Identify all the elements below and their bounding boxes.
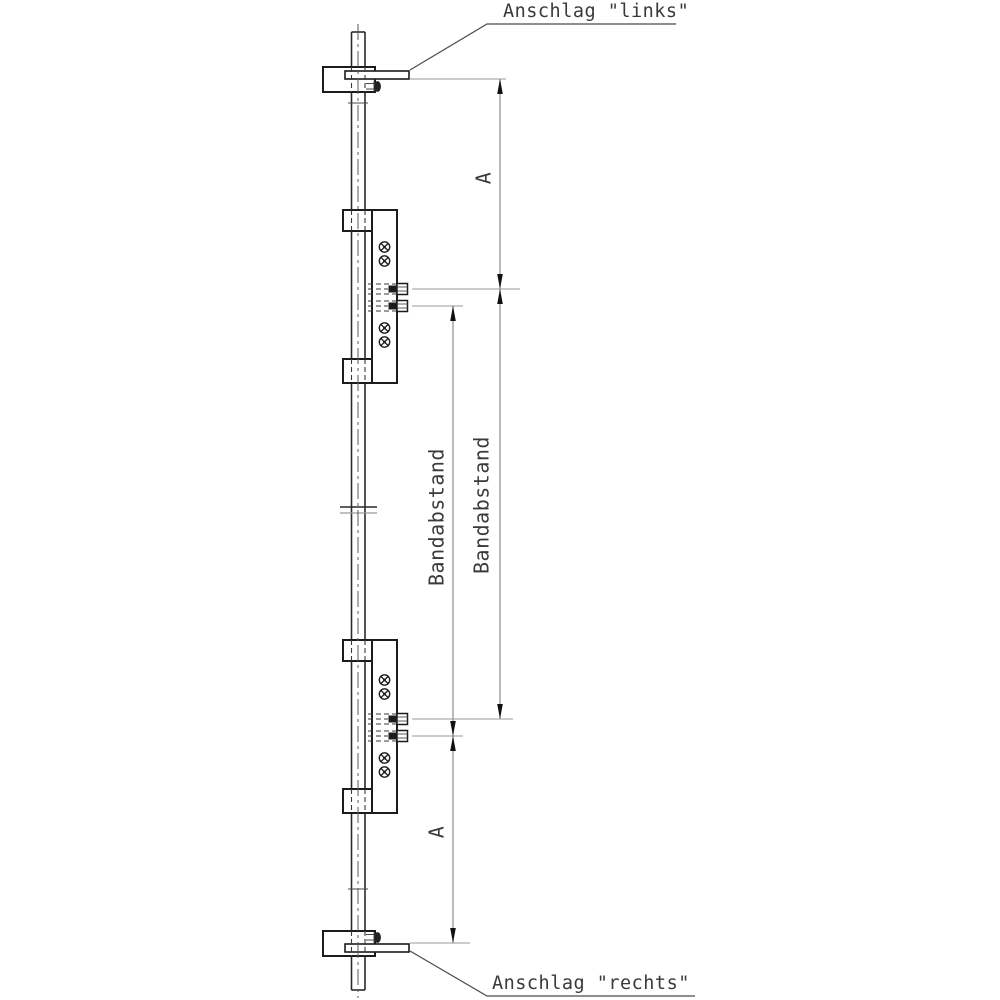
- screw-icon: [379, 753, 389, 763]
- technical-drawing-page: A Bandabstand Bandabstand A Anschlag "li…: [0, 0, 1000, 1000]
- screw-icon: [379, 337, 389, 347]
- top-end-bracket: [323, 67, 409, 92]
- dimension-bandabstand-left-and-a-bottom: Bandabstand A: [425, 306, 456, 943]
- screw-icon: [379, 675, 389, 685]
- bottom-bracket-plate: [345, 944, 409, 952]
- lower-hinge-band: [343, 640, 408, 813]
- top-bracket-plate: [345, 71, 409, 79]
- dim-label-bandabstand-left: Bandabstand: [425, 448, 449, 586]
- screw-icon: [379, 689, 389, 699]
- upper-hinge-band: [343, 210, 408, 383]
- dim-label-bandabstand-right: Bandabstand: [470, 436, 494, 574]
- dimension-lines: A Bandabstand Bandabstand A: [410, 79, 520, 943]
- callout-text-rechts: Anschlag "rechts": [492, 973, 690, 994]
- dim-label-a-top: A: [472, 172, 496, 185]
- callout-anschlag-links: Anschlag "links": [410, 1, 689, 70]
- upper-hinge-plate: [372, 210, 397, 383]
- bottom-end-bracket: [323, 931, 409, 956]
- screw-icon: [379, 256, 389, 266]
- screw-icon: [379, 242, 389, 252]
- screw-icon: [379, 323, 389, 333]
- dim-label-a-bottom: A: [425, 826, 449, 839]
- hinge-band-technical-drawing: A Bandabstand Bandabstand A Anschlag "li…: [0, 0, 1000, 1000]
- dimension-a-top-and-bandabstand-right: A Bandabstand: [470, 79, 503, 719]
- callout-anschlag-rechts: Anschlag "rechts": [410, 951, 695, 996]
- screw-icon: [379, 767, 389, 777]
- callout-text-links: Anschlag "links": [503, 1, 689, 22]
- lower-hinge-plate: [372, 640, 397, 813]
